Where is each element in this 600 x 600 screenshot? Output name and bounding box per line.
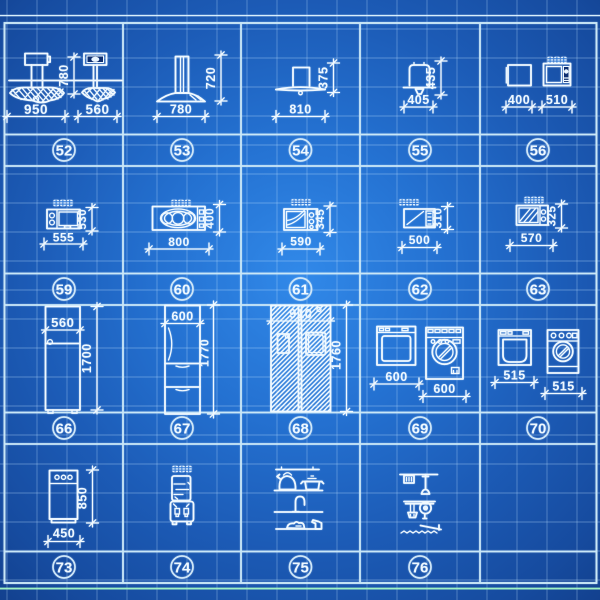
svg-text:590: 590 (290, 235, 312, 249)
svg-text:310: 310 (433, 208, 445, 229)
svg-text:400: 400 (205, 208, 217, 229)
svg-text:810: 810 (289, 103, 311, 117)
svg-text:800: 800 (168, 235, 190, 249)
svg-text:850: 850 (76, 487, 90, 509)
svg-text:555: 555 (53, 231, 75, 245)
svg-text:74: 74 (174, 559, 191, 576)
svg-text:450: 450 (53, 527, 75, 541)
svg-text:1770: 1770 (198, 339, 212, 367)
svg-text:345: 345 (315, 209, 327, 230)
svg-text:325: 325 (547, 206, 559, 227)
svg-text:515: 515 (503, 369, 525, 383)
svg-text:600: 600 (171, 310, 193, 324)
svg-text:66: 66 (56, 420, 73, 437)
svg-text:56: 56 (530, 142, 547, 159)
svg-text:62: 62 (412, 281, 429, 298)
svg-text:780: 780 (170, 103, 192, 117)
svg-text:60: 60 (174, 281, 191, 298)
svg-text:500: 500 (409, 233, 431, 247)
svg-text:73: 73 (56, 559, 73, 576)
svg-text:54: 54 (292, 142, 309, 159)
svg-text:950: 950 (24, 102, 48, 117)
svg-text:1700: 1700 (80, 343, 94, 373)
svg-text:570: 570 (521, 231, 543, 245)
svg-text:560: 560 (51, 315, 74, 330)
svg-text:70: 70 (530, 420, 547, 437)
svg-text:910: 910 (289, 306, 312, 321)
svg-text:61: 61 (292, 281, 309, 298)
svg-text:59: 59 (56, 281, 73, 298)
svg-text:75: 75 (292, 559, 309, 576)
svg-text:53: 53 (174, 142, 191, 159)
svg-text:405: 405 (407, 93, 429, 107)
svg-text:530: 530 (77, 209, 89, 230)
svg-text:69: 69 (412, 420, 429, 437)
svg-text:52: 52 (56, 142, 73, 159)
svg-text:515: 515 (552, 380, 574, 394)
svg-text:435: 435 (424, 67, 438, 89)
svg-text:510: 510 (546, 93, 568, 107)
svg-text:63: 63 (530, 281, 547, 298)
svg-text:76: 76 (412, 559, 429, 576)
svg-text:400: 400 (508, 93, 530, 107)
svg-text:55: 55 (412, 142, 429, 159)
svg-text:560: 560 (85, 102, 109, 117)
svg-text:600: 600 (433, 382, 455, 396)
svg-text:600: 600 (385, 370, 407, 384)
svg-text:780: 780 (57, 64, 71, 86)
svg-text:68: 68 (292, 420, 309, 437)
svg-text:1760: 1760 (330, 340, 344, 370)
svg-text:375: 375 (317, 67, 331, 89)
svg-text:67: 67 (174, 420, 191, 437)
svg-text:720: 720 (204, 67, 218, 89)
